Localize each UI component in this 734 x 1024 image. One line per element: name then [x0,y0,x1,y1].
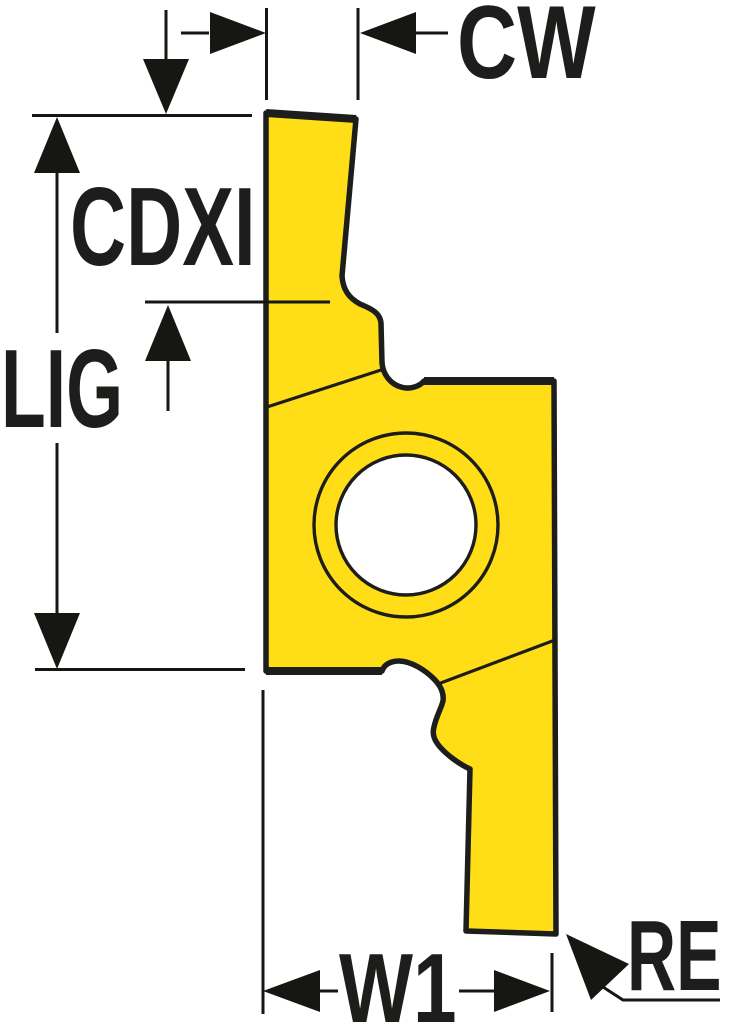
cdxi-arrowhead-down-icon [143,59,189,114]
lig-arrowhead-down-icon [34,613,80,669]
screw-hole-inner-circle [336,455,476,595]
cdxi-label: CDXI [70,165,256,289]
re-label: RE [627,901,721,1012]
w1-label: W1 [339,934,457,1024]
insert-dimension-drawing: CW CDXI LIG W1 RE [0,0,734,1024]
lig-label: LIG [1,327,123,451]
cw-label: CW [457,0,596,100]
cw-arrowhead-left-icon [360,12,416,54]
w1-arrowhead-left-icon [263,970,320,1012]
callout-re: RE [566,901,721,1012]
insert [266,113,556,934]
w1-arrowhead-right-icon [494,970,550,1012]
cw-arrowhead-right-icon [210,12,266,54]
dimension-cw: CW [181,0,596,100]
lig-arrowhead-up-icon [34,117,80,173]
cdxi-arrowhead-up-icon [145,305,191,361]
re-arrowhead-icon [566,934,629,1000]
